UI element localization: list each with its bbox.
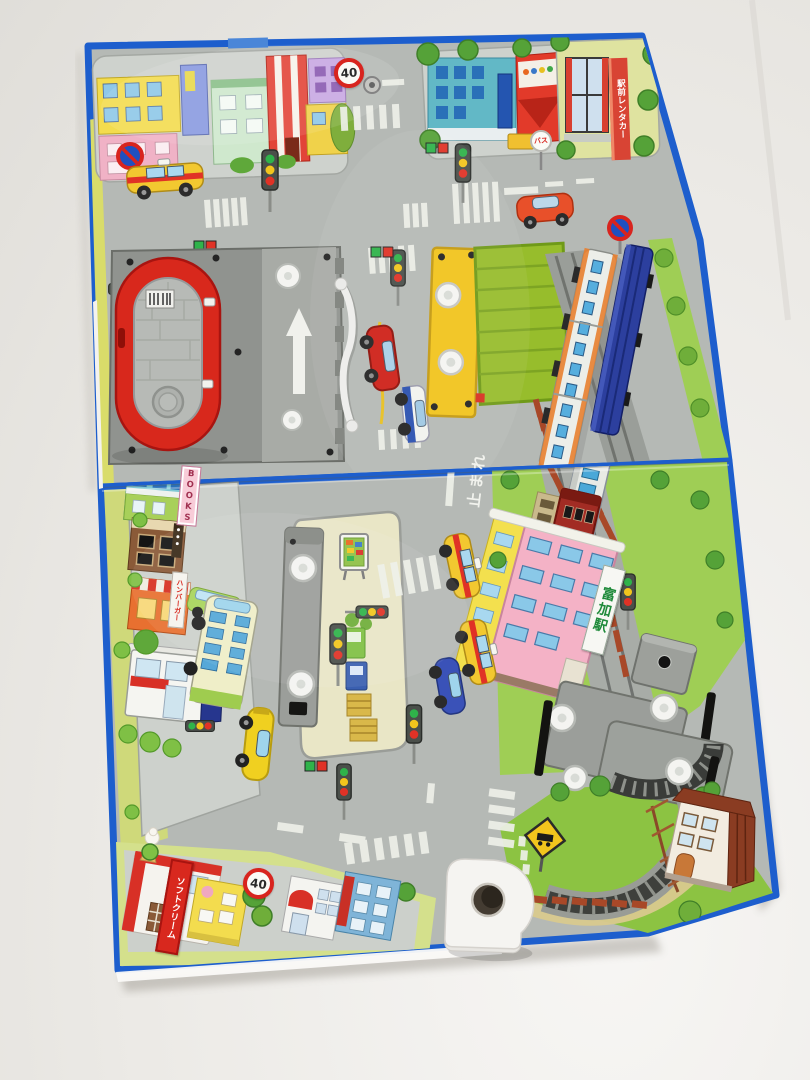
building-teal-door: [498, 74, 512, 128]
traffic-light-icon: [186, 721, 215, 732]
blue-shop: [335, 872, 401, 941]
border-notch: [228, 37, 268, 48]
white-shop: [282, 876, 343, 940]
photo-of-toy-playbook: 40 40 止まれ BOOKS 富加駅 バス ソフトクリーム 駅前レンタカー ハ…: [0, 0, 810, 1080]
rent-a-car-sign: 駅前レンタカー: [608, 58, 631, 161]
glare: [310, 130, 530, 510]
arrow-marking: [293, 336, 305, 394]
backdrop-crease: [752, 0, 788, 320]
yellow-shop: [187, 878, 249, 946]
playbook-artwork: [0, 0, 810, 1080]
